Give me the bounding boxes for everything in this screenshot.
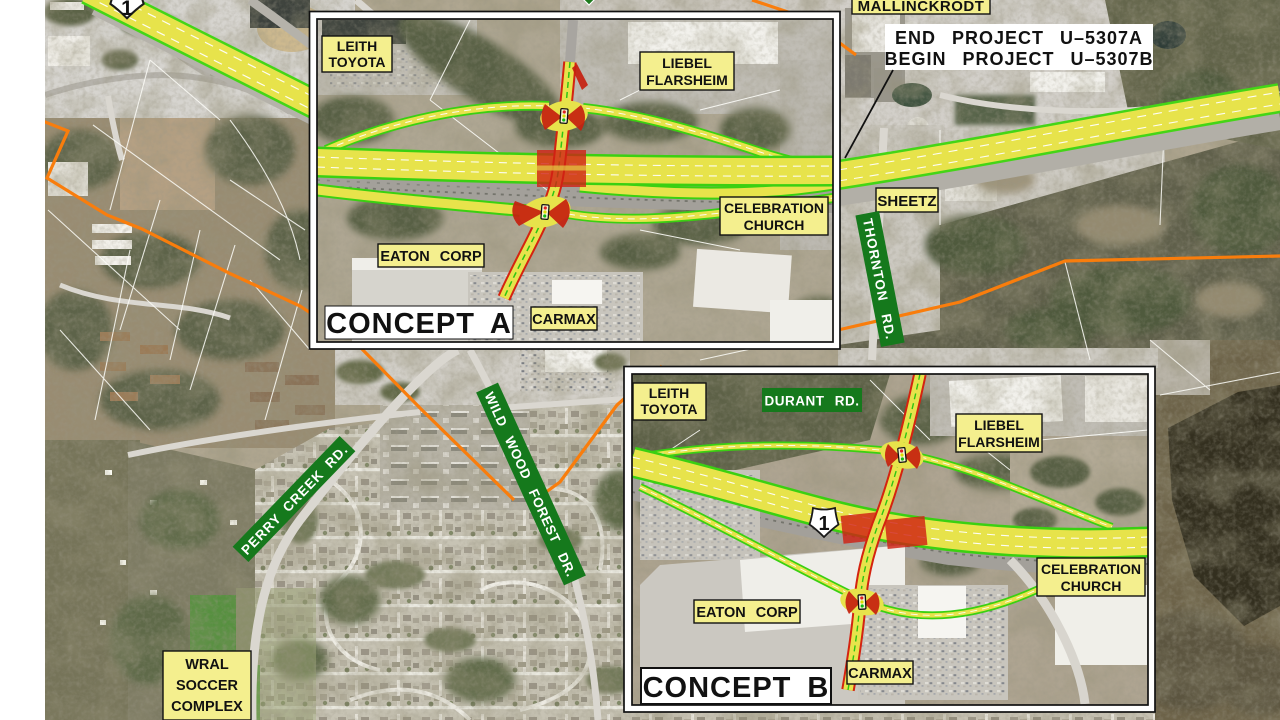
svg-text:DURANT RD.: DURANT RD. xyxy=(765,394,860,409)
svg-text:SHEETZ: SHEETZ xyxy=(877,193,936,210)
svg-text:LEITH: LEITH xyxy=(337,38,377,54)
svg-text:CHURCH: CHURCH xyxy=(1061,578,1122,594)
svg-text:CHURCH: CHURCH xyxy=(744,217,805,233)
svg-text:CARMAX: CARMAX xyxy=(532,312,596,328)
svg-text:1: 1 xyxy=(818,513,829,535)
svg-text:LIEBEL: LIEBEL xyxy=(974,417,1024,433)
svg-text:1: 1 xyxy=(121,0,133,20)
svg-text:WRAL: WRAL xyxy=(185,657,229,673)
svg-text:EATON CORP: EATON CORP xyxy=(696,605,798,621)
svg-text:END PROJECT U–5307A: END PROJECT U–5307A xyxy=(895,28,1143,48)
svg-text:SOCCER: SOCCER xyxy=(176,678,239,694)
svg-text:BEGIN PROJECT U–5307B: BEGIN PROJECT U–5307B xyxy=(884,49,1153,69)
svg-text:CARMAX: CARMAX xyxy=(848,666,912,682)
svg-text:LIEBEL: LIEBEL xyxy=(662,55,712,71)
svg-text:LEITH: LEITH xyxy=(649,385,689,401)
svg-text:EATON CORP: EATON CORP xyxy=(380,249,482,265)
svg-text:COMPLEX: COMPLEX xyxy=(171,699,243,715)
svg-text:CONCEPT B: CONCEPT B xyxy=(643,672,830,704)
svg-text:CELEBRATION: CELEBRATION xyxy=(724,200,824,216)
svg-text:CONCEPT A: CONCEPT A xyxy=(326,308,512,340)
svg-text:TOYOTA: TOYOTA xyxy=(328,54,385,70)
svg-text:CELEBRATION: CELEBRATION xyxy=(1041,561,1141,577)
svg-text:FLARSHEIM: FLARSHEIM xyxy=(958,434,1040,450)
svg-text:MALLINCKRODT: MALLINCKRODT xyxy=(858,0,985,15)
svg-text:FLARSHEIM: FLARSHEIM xyxy=(646,72,728,88)
svg-text:TOYOTA: TOYOTA xyxy=(640,401,697,417)
